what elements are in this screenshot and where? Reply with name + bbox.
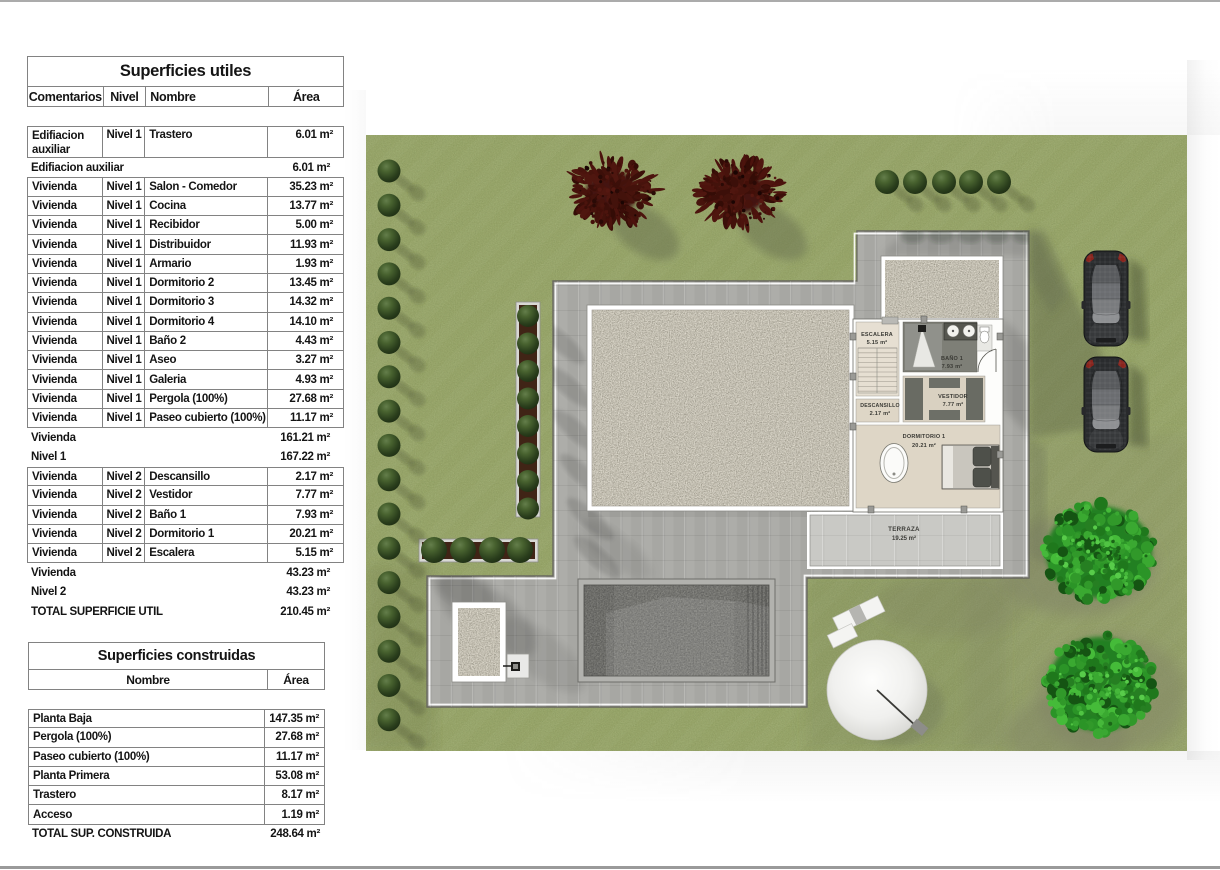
svg-text:ESCALERA: ESCALERA <box>861 332 893 338</box>
svg-text:BAÑO 1: BAÑO 1 <box>941 355 963 362</box>
svg-text:7.77 m²: 7.77 m² <box>943 401 964 408</box>
svg-text:DESCANSILLO: DESCANSILLO <box>860 403 899 409</box>
svg-text:5.15 m²: 5.15 m² <box>867 339 888 346</box>
svg-text:19.25 m²: 19.25 m² <box>892 535 916 542</box>
svg-text:TERRAZA: TERRAZA <box>888 526 920 533</box>
svg-text:VESTIDOR: VESTIDOR <box>938 394 968 400</box>
svg-text:7.93 m²: 7.93 m² <box>942 363 963 370</box>
svg-text:2.17 m²: 2.17 m² <box>870 410 891 417</box>
svg-text:20.21 m²: 20.21 m² <box>912 442 936 449</box>
svg-text:DORMITORIO 1: DORMITORIO 1 <box>903 434 946 440</box>
